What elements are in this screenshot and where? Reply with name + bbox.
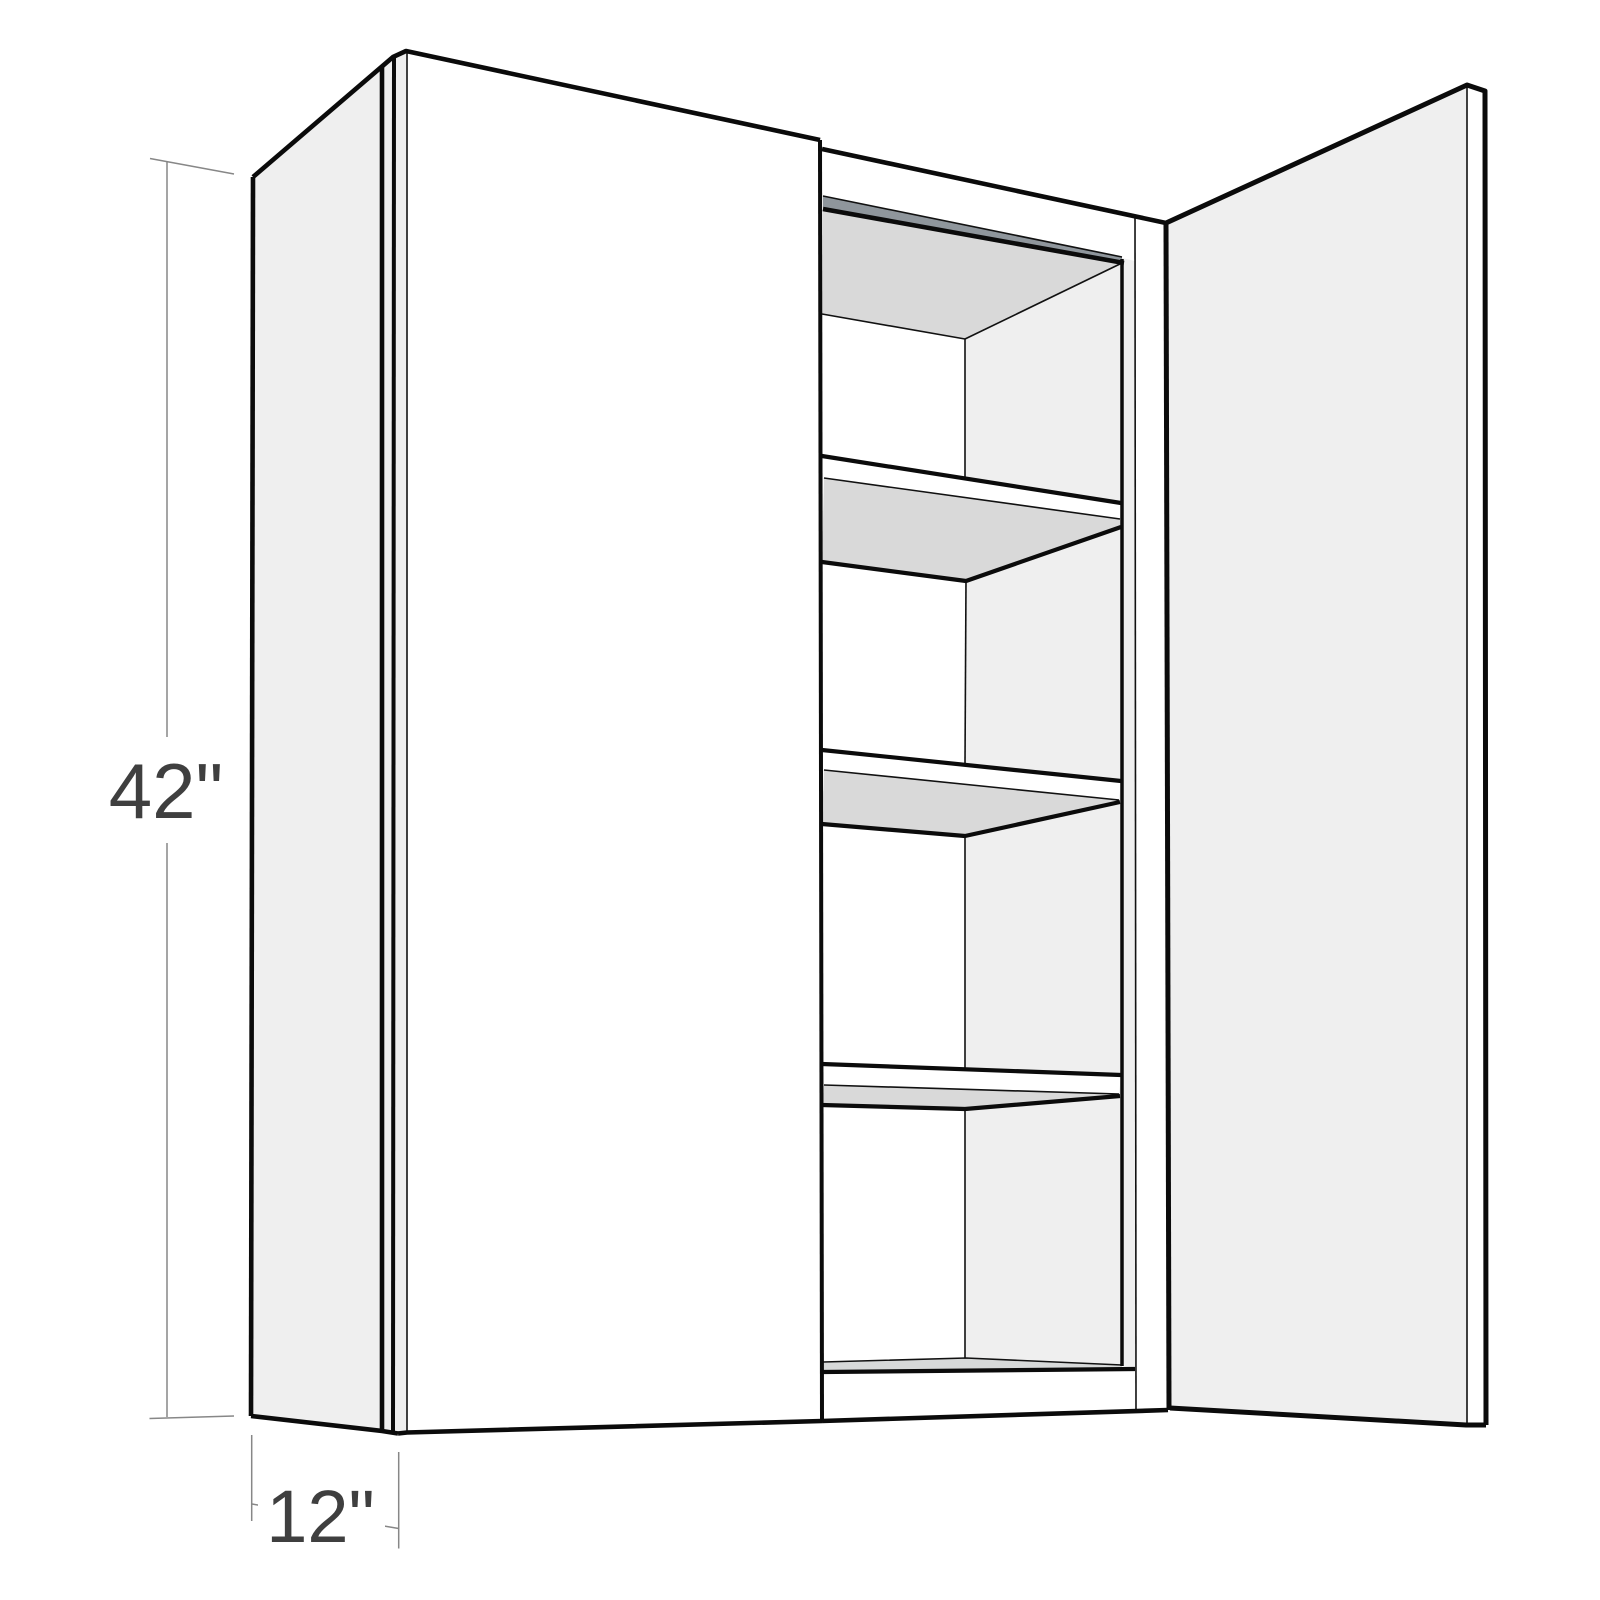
svg-text:12": 12" [266,1475,375,1558]
svg-text:42": 42" [109,747,223,835]
